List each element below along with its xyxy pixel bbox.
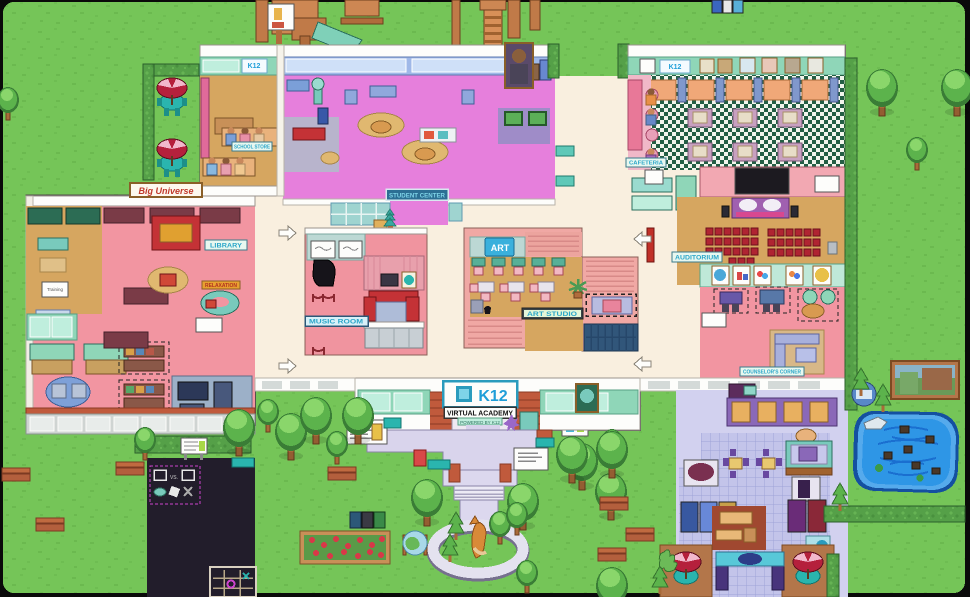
svg-text:K12: K12 bbox=[248, 63, 261, 70]
svg-text:ART: ART bbox=[491, 243, 510, 253]
svg-text:K12: K12 bbox=[669, 64, 682, 71]
svg-text:K12: K12 bbox=[478, 388, 507, 405]
svg-text:COUNSELOR'S CORNER: COUNSELOR'S CORNER bbox=[743, 370, 801, 376]
svg-text:SCHOOL STORE: SCHOOL STORE bbox=[234, 145, 271, 151]
svg-text:CAFETERIA: CAFETERIA bbox=[629, 161, 663, 167]
svg-text:POWERED BY K12: POWERED BY K12 bbox=[460, 420, 500, 425]
svg-text:LIBRARY: LIBRARY bbox=[210, 244, 242, 250]
svg-text:Training: Training bbox=[47, 287, 64, 292]
svg-text:MUSIC ROOM: MUSIC ROOM bbox=[309, 320, 363, 326]
svg-text:Big Universe: Big Universe bbox=[138, 186, 193, 196]
svg-text:VS.: VS. bbox=[170, 475, 178, 481]
svg-text:VIRTUAL ACADEMY: VIRTUAL ACADEMY bbox=[447, 409, 513, 418]
svg-text:AUDITORIUM: AUDITORIUM bbox=[675, 256, 719, 262]
svg-text:STUDENT CENTER: STUDENT CENTER bbox=[389, 193, 445, 200]
svg-text:RELAXATION: RELAXATION bbox=[205, 283, 237, 289]
svg-text:ART STUDIO: ART STUDIO bbox=[527, 312, 577, 318]
